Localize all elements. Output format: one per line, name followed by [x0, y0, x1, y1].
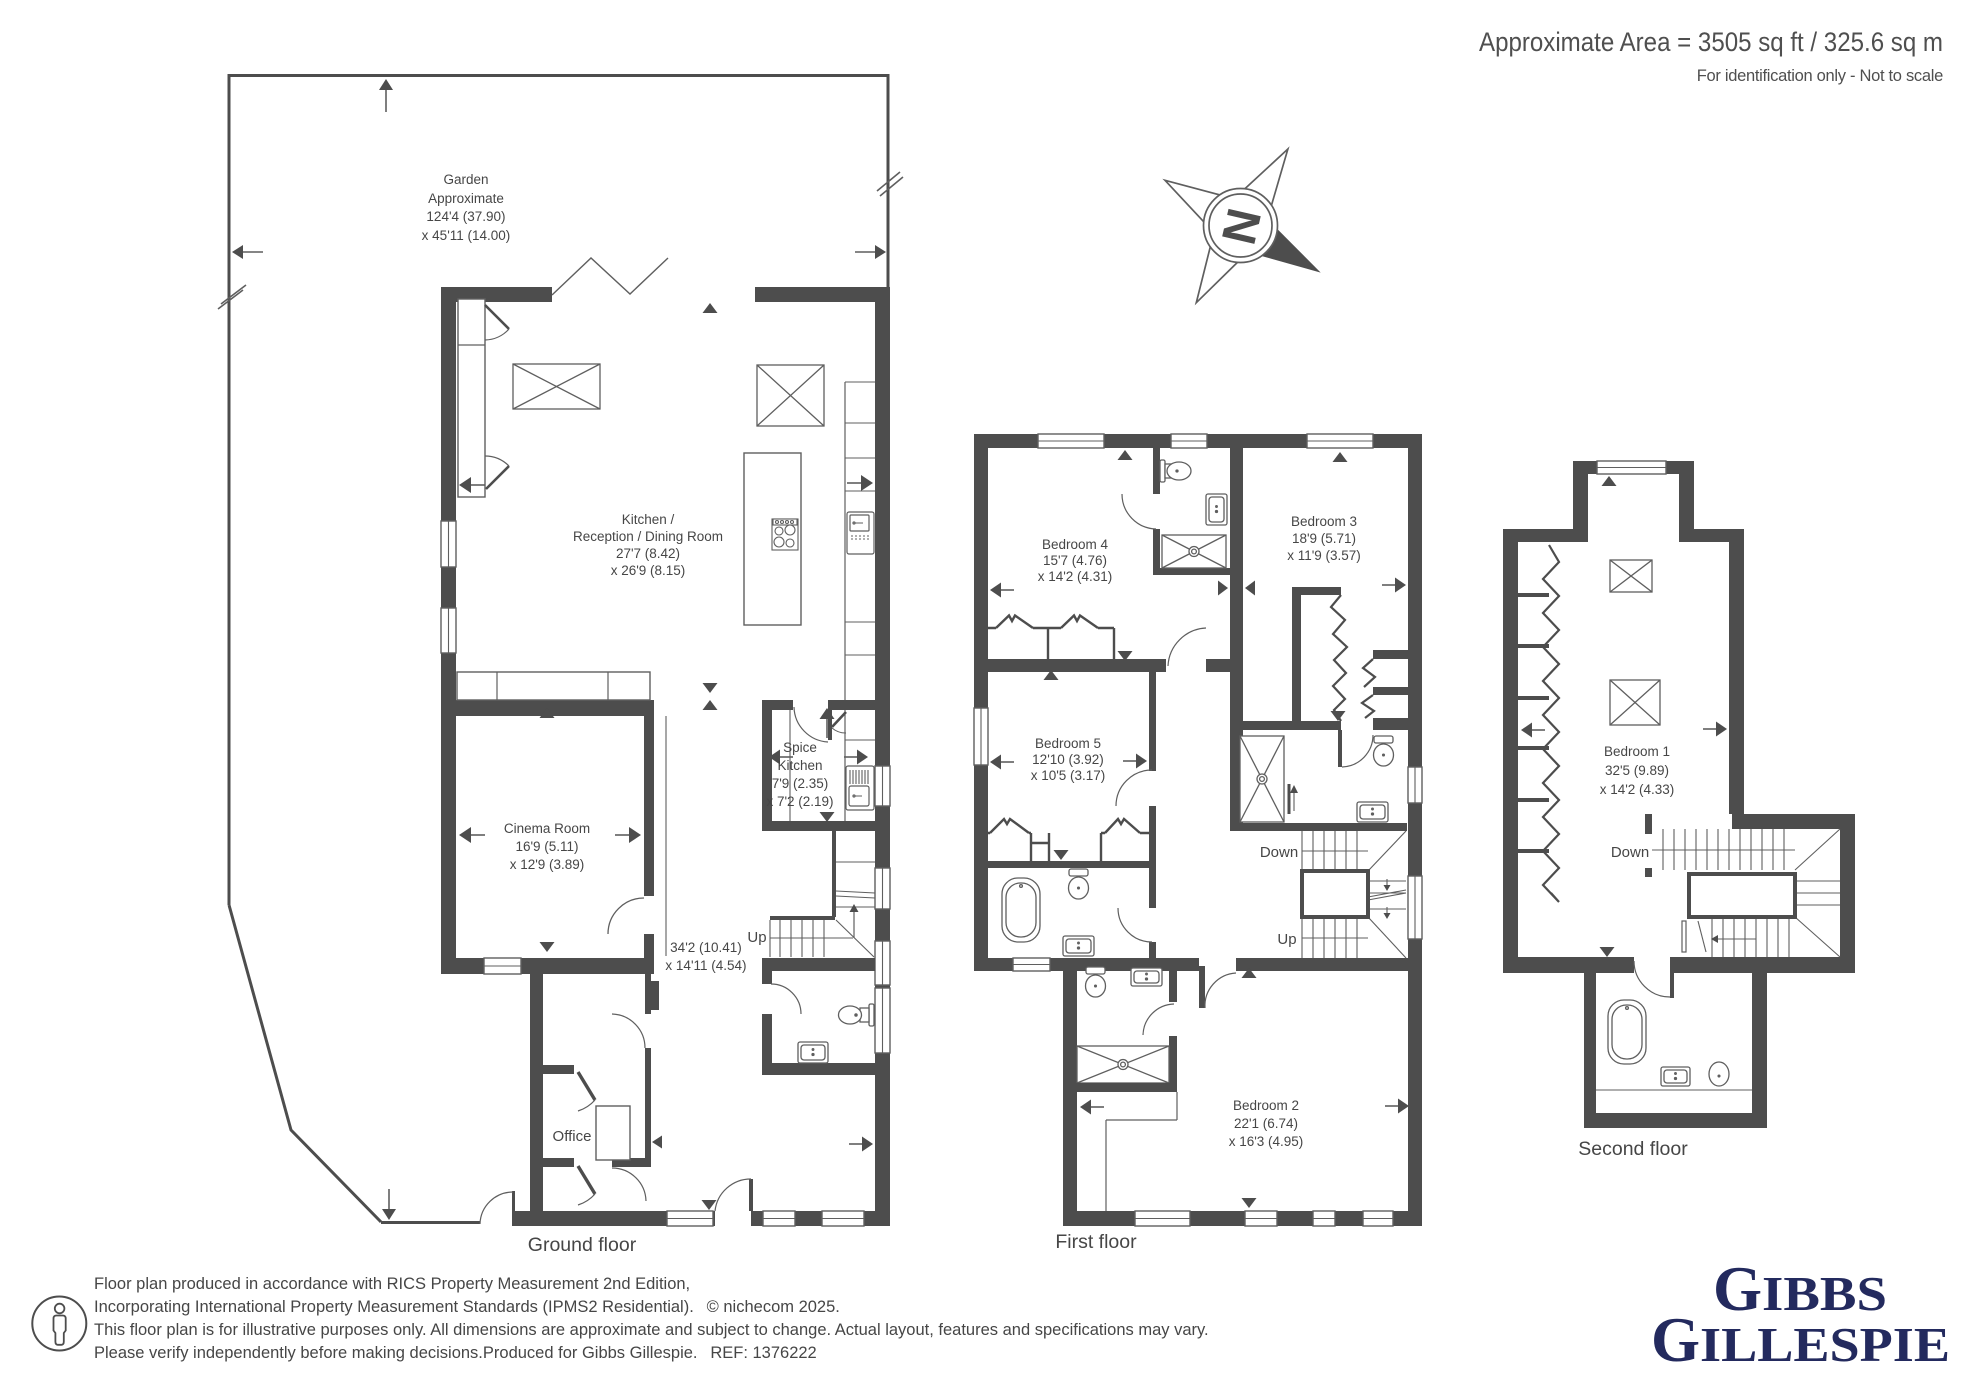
svg-text:G: G	[1713, 1254, 1762, 1324]
svg-text:x 12'9 (3.89): x 12'9 (3.89)	[510, 857, 585, 872]
svg-text:7'9 (2.35): 7'9 (2.35)	[772, 776, 829, 791]
svg-text:Down: Down	[1260, 844, 1298, 861]
svg-text:First floor: First floor	[1055, 1231, 1137, 1253]
svg-text:15'7 (4.76): 15'7 (4.76)	[1043, 553, 1107, 568]
svg-text:Kitchen /: Kitchen /	[622, 512, 675, 527]
svg-text:Reception / Dining Room: Reception / Dining Room	[573, 529, 723, 544]
svg-text:Up: Up	[747, 929, 766, 946]
svg-text:Cinema Room: Cinema Room	[504, 821, 590, 836]
svg-text:32'5 (9.89): 32'5 (9.89)	[1605, 763, 1669, 778]
svg-text:x 14'2 (4.31): x 14'2 (4.31)	[1038, 569, 1113, 584]
svg-text:Spice: Spice	[783, 740, 817, 755]
svg-text:x 16'3 (4.95): x 16'3 (4.95)	[1229, 1134, 1304, 1149]
svg-text:Please verify independently be: Please verify independently before makin…	[94, 1344, 817, 1362]
svg-text:Office: Office	[553, 1128, 592, 1145]
svg-text:x 14'2 (4.33): x 14'2 (4.33)	[1600, 782, 1675, 797]
svg-text:Ground floor: Ground floor	[528, 1234, 637, 1256]
svg-text:x 45'11 (14.00): x 45'11 (14.00)	[422, 228, 511, 243]
svg-text:x 7'2 (2.19): x 7'2 (2.19)	[766, 794, 833, 809]
svg-text:124'4 (37.90): 124'4 (37.90)	[426, 209, 505, 224]
svg-text:18'9 (5.71): 18'9 (5.71)	[1292, 531, 1356, 546]
svg-text:Approximate Area = 3505 sq ft: Approximate Area = 3505 sq ft / 325.6 sq…	[1479, 27, 1943, 57]
svg-text:27'7 (8.42): 27'7 (8.42)	[616, 546, 680, 561]
svg-text:Bedroom 2: Bedroom 2	[1233, 1098, 1299, 1113]
svg-text:x 14'11 (4.54): x 14'11 (4.54)	[665, 958, 746, 973]
svg-text:Up: Up	[1277, 931, 1296, 948]
svg-text:Incorporating International Pr: Incorporating International Property Mea…	[94, 1298, 840, 1316]
svg-text:Bedroom 1: Bedroom 1	[1604, 744, 1670, 759]
svg-text:ILLESPIE: ILLESPIE	[1700, 1317, 1950, 1372]
svg-text:For identification only - Not: For identification only - Not to scale	[1697, 67, 1943, 85]
svg-text:Floor plan produced in accorda: Floor plan produced in accordance with R…	[94, 1275, 690, 1293]
svg-text:Bedroom 4: Bedroom 4	[1042, 537, 1109, 552]
svg-text:Garden: Garden	[443, 172, 488, 187]
svg-text:Kitchen: Kitchen	[777, 758, 822, 773]
svg-text:Second floor: Second floor	[1578, 1138, 1688, 1160]
svg-text:IBBS: IBBS	[1762, 1266, 1887, 1321]
svg-text:G: G	[1651, 1305, 1700, 1375]
svg-text:16'9 (5.11): 16'9 (5.11)	[515, 839, 578, 854]
svg-text:x 11'9 (3.57): x 11'9 (3.57)	[1287, 548, 1361, 563]
svg-text:Bedroom 5: Bedroom 5	[1035, 736, 1101, 751]
svg-text:x 26'9 (8.15): x 26'9 (8.15)	[611, 563, 686, 578]
svg-text:22'1 (6.74): 22'1 (6.74)	[1234, 1116, 1298, 1131]
svg-text:This floor plan is for illustr: This floor plan is for illustrative purp…	[94, 1321, 1209, 1339]
svg-text:12'10 (3.92): 12'10 (3.92)	[1032, 752, 1104, 767]
svg-text:Down: Down	[1611, 844, 1649, 861]
svg-text:Approximate: Approximate	[428, 191, 504, 206]
svg-text:Bedroom 3: Bedroom 3	[1291, 514, 1357, 529]
svg-text:34'2 (10.41): 34'2 (10.41)	[670, 940, 742, 955]
svg-text:x 10'5 (3.17): x 10'5 (3.17)	[1031, 768, 1106, 783]
